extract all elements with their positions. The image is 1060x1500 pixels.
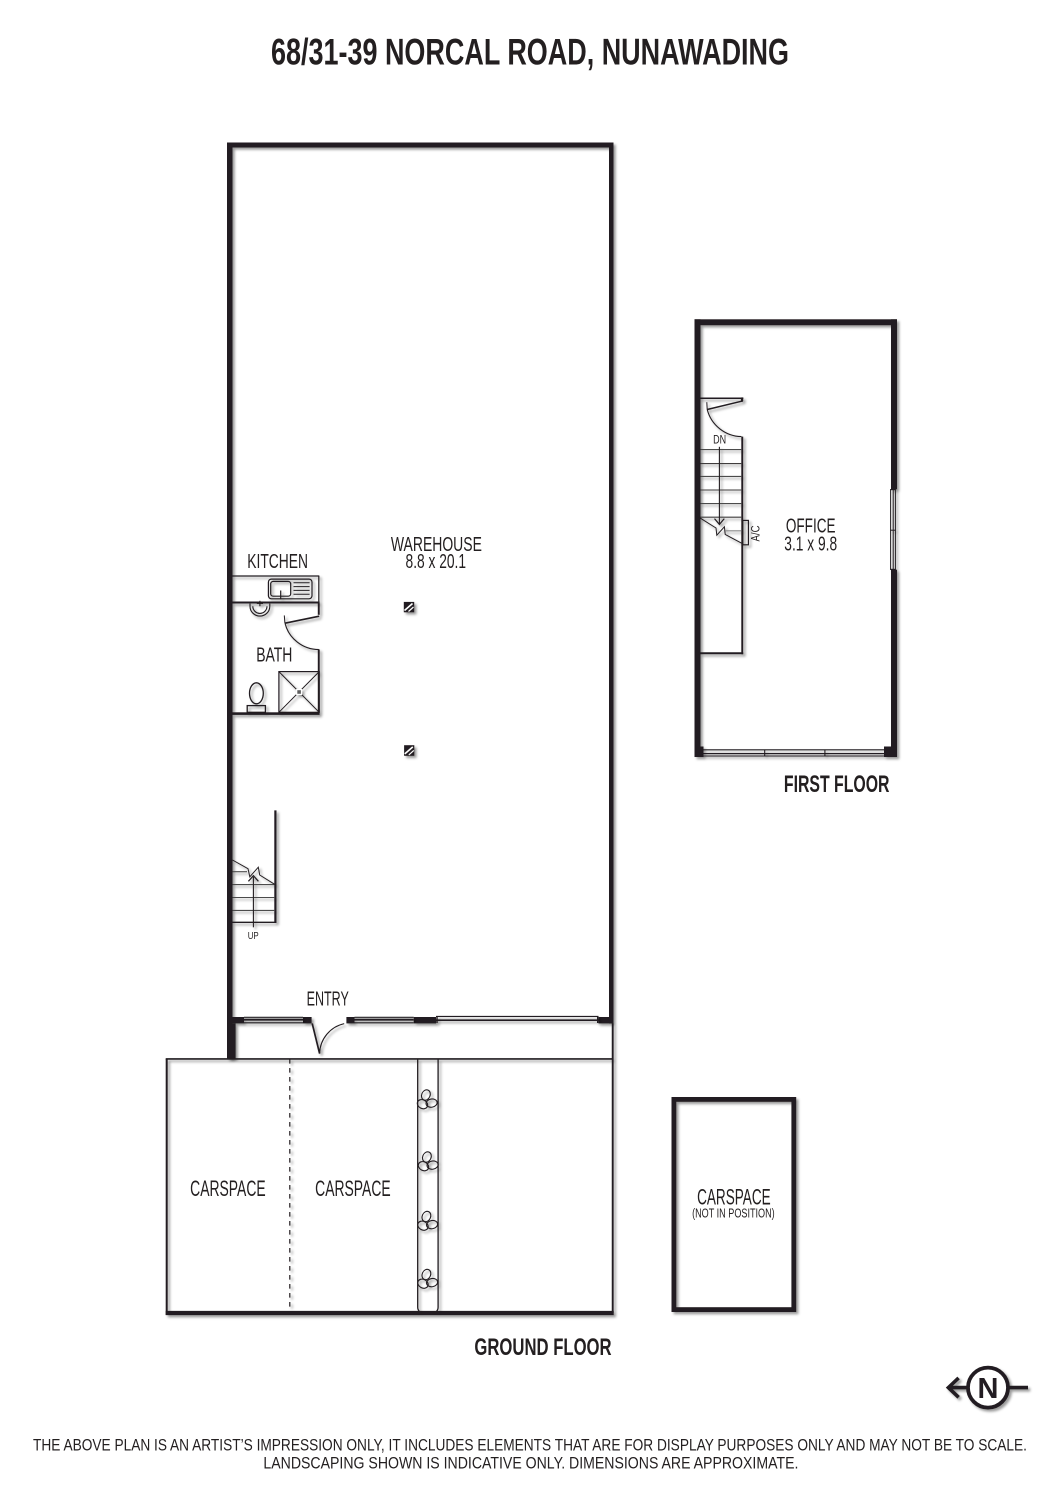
svg-text:FIRST FLOOR: FIRST FLOOR [784, 771, 890, 798]
svg-text:CARSPACE: CARSPACE [315, 1176, 391, 1201]
svg-text:ENTRY: ENTRY [307, 989, 349, 1011]
svg-text:GROUND FLOOR: GROUND FLOOR [474, 1334, 611, 1361]
svg-text:(NOT IN POSITION): (NOT IN POSITION) [692, 1206, 775, 1221]
svg-text:CARSPACE: CARSPACE [190, 1176, 266, 1201]
svg-text:DN: DN [713, 433, 726, 447]
svg-text:UP: UP [248, 930, 259, 942]
svg-text:3.1 x 9.8: 3.1 x 9.8 [784, 533, 837, 555]
svg-text:68/31-39 NORCAL ROAD, NUNAWADI: 68/31-39 NORCAL ROAD, NUNAWADING [271, 32, 789, 73]
svg-text:KITCHEN: KITCHEN [247, 551, 308, 573]
svg-text:LANDSCAPING SHOWN IS INDICATIV: LANDSCAPING SHOWN IS INDICATIVE ONLY. DI… [263, 1455, 798, 1473]
svg-text:THE ABOVE PLAN IS AN ARTIST’S: THE ABOVE PLAN IS AN ARTIST’S IMPRESSION… [33, 1436, 1027, 1454]
svg-text:8.8 x 20.1: 8.8 x 20.1 [406, 551, 467, 573]
svg-text:N: N [978, 1373, 999, 1405]
svg-text:A/C: A/C [749, 525, 763, 541]
svg-text:BATH: BATH [256, 645, 292, 667]
